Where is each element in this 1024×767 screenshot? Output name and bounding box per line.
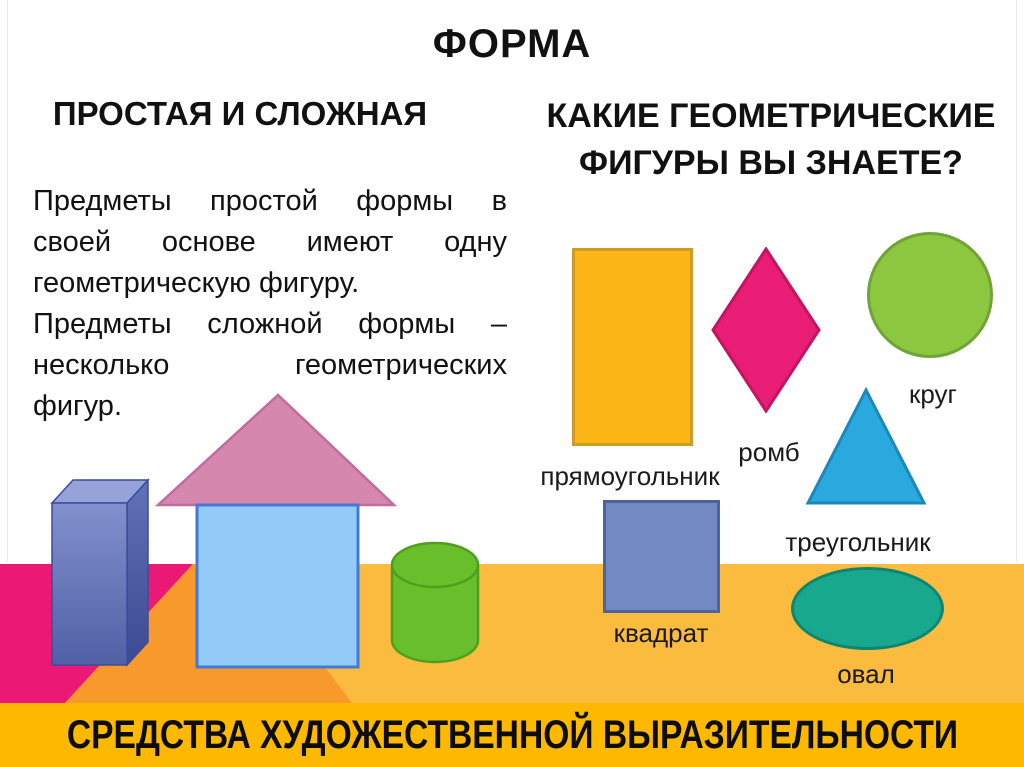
body-line: своей основе имеют одну: [33, 222, 507, 263]
label-rhombus: ромб: [738, 437, 799, 468]
body-line: геометрическую фигуру.: [33, 263, 507, 304]
prism-side-face: [127, 480, 148, 665]
slide-title: ФОРМА: [0, 22, 1024, 67]
body-line: Предметы сложной формы –: [33, 304, 507, 345]
label-circle: круг: [909, 379, 957, 410]
left-heading: ПРОСТАЯ И СЛОЖНАЯ: [33, 95, 447, 133]
triangle-polygon: [808, 390, 924, 503]
right-heading: КАКИЕ ГЕОМЕТРИЧЕСКИЕ ФИГУРЫ ВЫ ЗНАЕТЕ?: [536, 93, 1006, 187]
label-oval: овал: [837, 659, 895, 690]
label-square: квадрат: [614, 618, 709, 649]
oval-shape: [791, 567, 944, 650]
footer-banner: СРЕДСТВА ХУДОЖЕСТВЕННОЙ ВЫРАЗИТЕЛЬНОСТИ: [0, 703, 1024, 767]
house-roof-triangle: [158, 395, 394, 505]
body-line: Предметы простой формы в: [33, 181, 507, 222]
rectangle-shape: [572, 248, 693, 446]
footer-banner-text: СРЕДСТВА ХУДОЖЕСТВЕННОЙ ВЫРАЗИТЕЛЬНОСТИ: [66, 713, 957, 758]
label-rectangle: прямоугольник: [540, 461, 719, 492]
circle-shape: [867, 232, 993, 358]
label-triangle: треугольник: [785, 527, 930, 558]
house-body-square: [197, 505, 358, 667]
body-line: несколько геометрических: [33, 345, 507, 386]
square-shape: [603, 500, 720, 613]
prism-front-face: [52, 503, 127, 665]
cylinder-top: [392, 543, 478, 587]
slide-root: { "slide": { "title": "ФОРМА", "left_sec…: [0, 0, 1024, 767]
